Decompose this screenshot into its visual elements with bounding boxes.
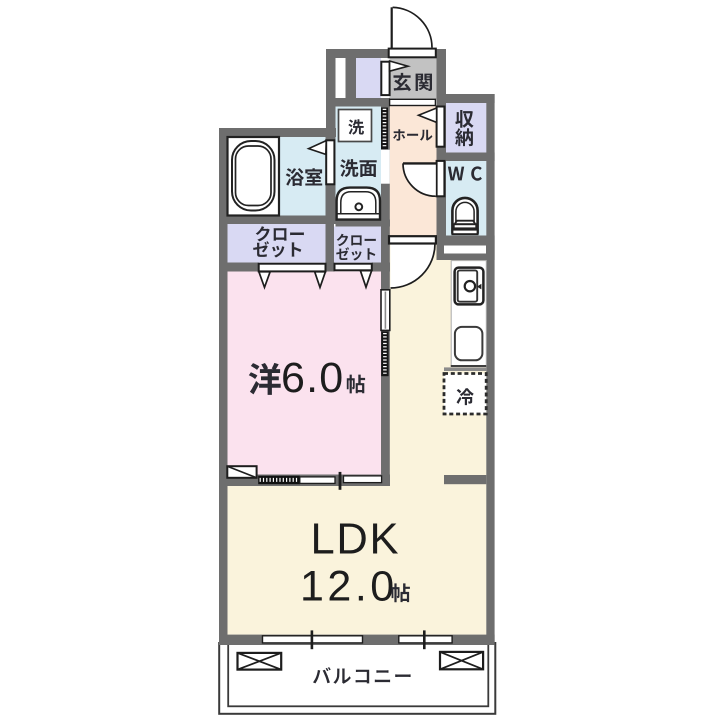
svg-text:12.0: 12.0 — [300, 562, 398, 610]
svg-text:LDK: LDK — [311, 515, 401, 563]
svg-text:6.0: 6.0 — [281, 354, 344, 402]
